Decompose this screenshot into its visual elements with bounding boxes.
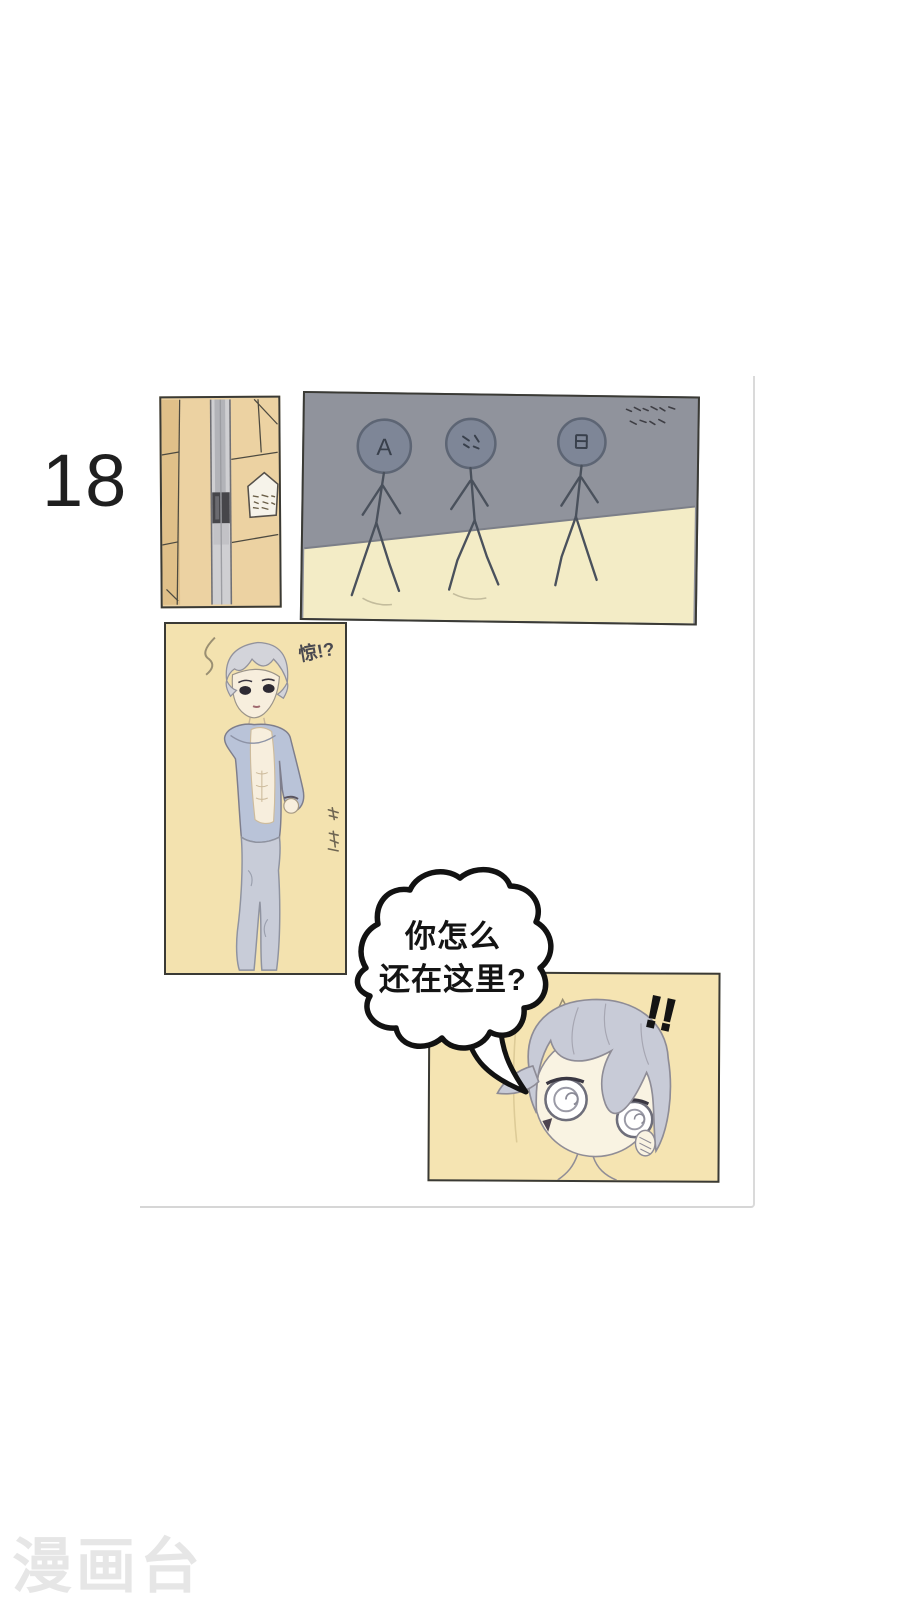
bubble-text-line2: 还在这里? — [348, 959, 558, 1002]
comic-reader-screen[interactable]: 18 — [0, 0, 900, 1600]
man-face — [232, 669, 279, 717]
watermark-logo: 漫画台 — [12, 1518, 204, 1600]
door-art — [161, 398, 279, 607]
panel-standing-man: 惊!? — [164, 622, 347, 975]
girl-neck — [558, 1154, 617, 1180]
hip-annotation-scribble — [328, 808, 338, 851]
man-hand — [284, 799, 299, 814]
girl-ear — [635, 1130, 655, 1156]
bubble-text-line1: 你怎么 — [348, 916, 558, 959]
speech-bubble: 你怎么 还在这里? — [348, 860, 563, 1098]
panel-door — [159, 396, 281, 609]
man-pants — [237, 837, 281, 970]
exclamation-marks: !! — [641, 985, 681, 1041]
stick-figures-art: A — [302, 393, 698, 623]
page-number: 18 — [42, 444, 128, 518]
door-pole — [211, 399, 232, 604]
standing-man-art: 惊!? — [166, 624, 345, 973]
stick-figure-label-a: A — [376, 434, 392, 460]
standing-man — [225, 642, 304, 970]
motion-mark — [205, 638, 215, 675]
startled-annotation: 惊!? — [297, 638, 336, 665]
panel-stick-figures: A — [300, 391, 700, 626]
